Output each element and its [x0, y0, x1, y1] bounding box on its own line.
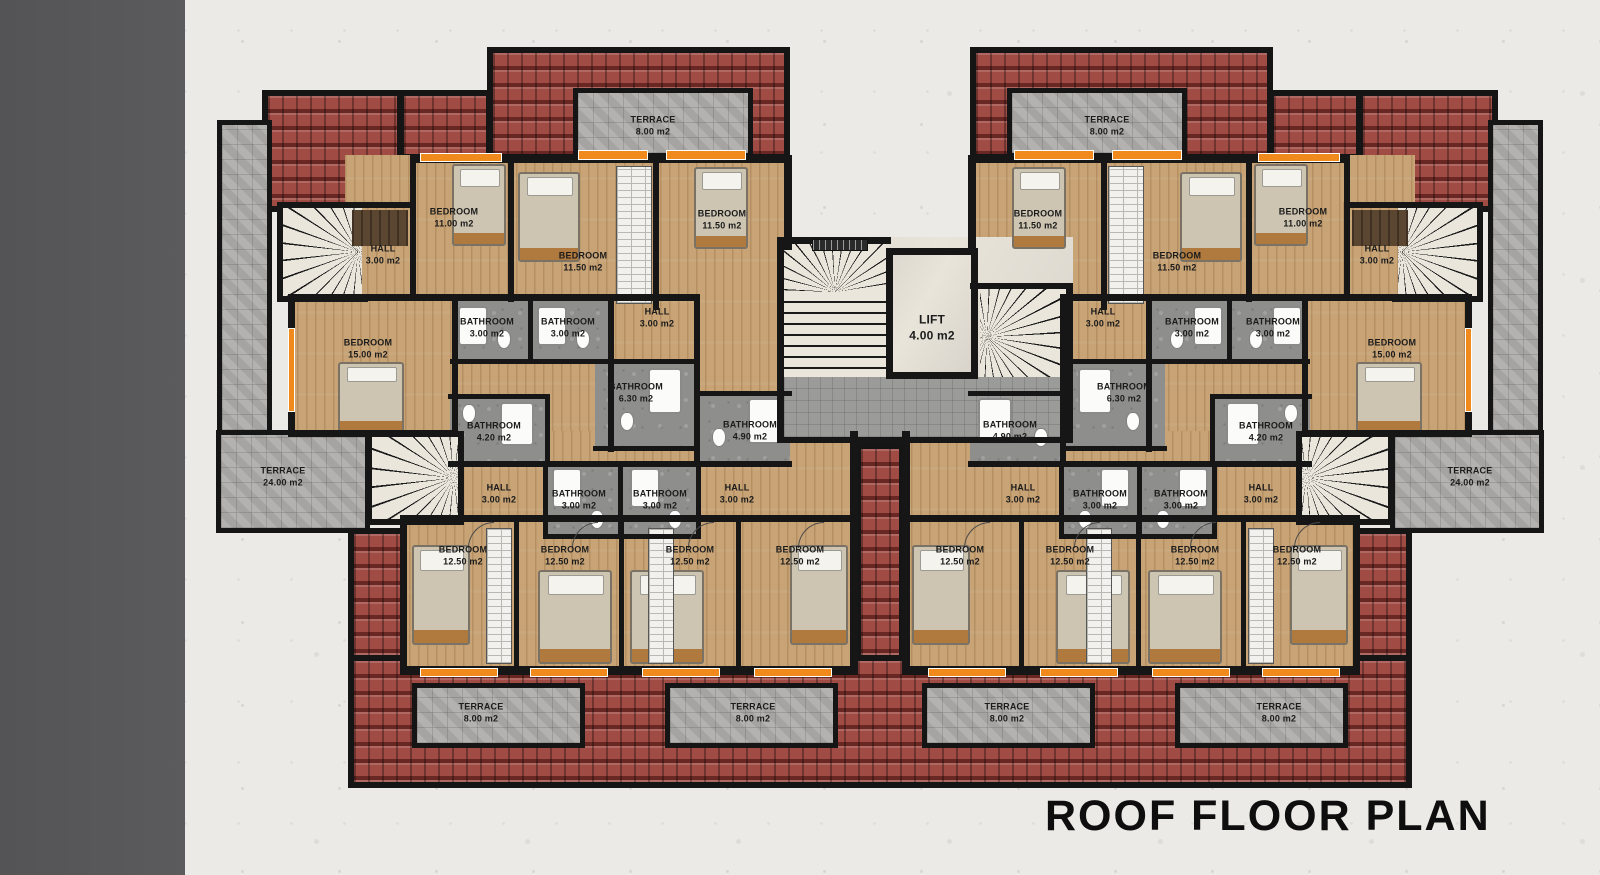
wall — [1477, 202, 1483, 302]
room-label-bathroom: BATHROOM4.90 m2 — [983, 419, 1037, 442]
window — [1040, 668, 1118, 677]
room-label-terrace: TERRACE8.00 m2 — [1257, 701, 1302, 724]
window — [1262, 668, 1340, 677]
wall — [458, 431, 464, 525]
wall — [508, 155, 514, 302]
room-label-bathroom: BATHROOM3.00 m2 — [1154, 488, 1208, 511]
room-label-bedroom: BEDROOM12.50 m2 — [439, 544, 487, 567]
wall — [1066, 283, 1073, 443]
room-label-bathroom: BATHROOM6.30 m2 — [1097, 381, 1151, 404]
stairs-lower-right — [1302, 437, 1388, 519]
window — [1465, 328, 1472, 412]
room-label-hall: HALL3.00 m2 — [1006, 482, 1040, 505]
wall — [850, 431, 858, 675]
stairs-upper-left — [282, 208, 362, 296]
bed — [1356, 362, 1422, 432]
room-label-hall: HALL3.00 m2 — [1086, 306, 1120, 329]
wall — [970, 283, 1073, 289]
wall — [968, 391, 1060, 396]
wardrobe — [486, 528, 512, 664]
wall — [1302, 294, 1308, 436]
room-label-lift: LIFT4.00 m2 — [909, 312, 954, 343]
window — [578, 150, 648, 160]
room-label-bedroom: BEDROOM12.50 m2 — [666, 544, 714, 567]
toilet — [1126, 412, 1140, 431]
window — [666, 150, 746, 160]
room-label-terrace: TERRACE8.00 m2 — [459, 701, 504, 724]
wall — [277, 202, 416, 208]
room-label-bathroom: BATHROOM3.00 m2 — [460, 316, 514, 339]
room-label-bedroom: BEDROOM11.50 m2 — [698, 208, 746, 231]
room-label-terrace: TERRACE8.00 m2 — [631, 114, 676, 137]
bed — [452, 164, 506, 246]
bed — [338, 362, 404, 432]
room-label-terrace: TERRACE8.00 m2 — [1085, 114, 1130, 137]
wall — [784, 155, 792, 250]
wall — [902, 431, 910, 675]
terrace-left-walkway — [217, 120, 272, 435]
toilet — [620, 412, 634, 431]
wall — [288, 294, 698, 301]
window — [1152, 668, 1230, 677]
room-label-hall: HALL3.00 m2 — [1360, 243, 1394, 266]
room-label-hall: HALL3.00 m2 — [720, 482, 754, 505]
bed — [1254, 164, 1308, 246]
wall — [410, 155, 416, 300]
roof-center-strip — [855, 443, 905, 673]
wall — [452, 294, 458, 436]
room-label-bedroom: BEDROOM12.50 m2 — [1171, 544, 1219, 567]
wall — [777, 237, 784, 443]
wall — [543, 461, 548, 539]
bed — [1148, 570, 1222, 664]
room-label-bedroom: BEDROOM12.50 m2 — [776, 544, 824, 567]
room-label-bathroom: BATHROOM3.00 m2 — [552, 488, 606, 511]
closet — [352, 210, 408, 246]
stairs-upper-right — [1398, 208, 1478, 296]
wall — [1059, 461, 1064, 539]
room-label-bedroom: BEDROOM12.50 m2 — [1046, 544, 1094, 567]
wall — [366, 431, 464, 437]
stairs-lower-left — [372, 437, 458, 519]
wall — [448, 394, 550, 399]
wall — [1246, 155, 1252, 302]
room-label-hall: HALL3.00 m2 — [482, 482, 516, 505]
roof-top-left-step — [398, 90, 492, 160]
window — [420, 668, 498, 677]
window — [1112, 150, 1182, 160]
wardrobe — [1108, 166, 1144, 304]
room-label-bedroom: BEDROOM11.50 m2 — [1014, 208, 1062, 231]
bed — [1180, 172, 1242, 262]
room-label-bathroom: BATHROOM4.20 m2 — [1239, 420, 1293, 443]
wall — [653, 158, 659, 310]
wall — [608, 294, 614, 452]
wall — [1241, 522, 1246, 669]
window — [1258, 153, 1340, 162]
room-label-terrace: TERRACE24.00 m2 — [1448, 465, 1493, 488]
room-label-bedroom: BEDROOM11.50 m2 — [1153, 250, 1201, 273]
room-label-bathroom: BATHROOM3.00 m2 — [541, 316, 595, 339]
bed — [538, 570, 612, 664]
room-label-bedroom: BEDROOM15.00 m2 — [1368, 337, 1416, 360]
room-label-terrace: TERRACE8.00 m2 — [731, 701, 776, 724]
terrace-right-walkway — [1488, 120, 1543, 435]
room-label-terrace: TERRACE24.00 m2 — [261, 465, 306, 488]
wall — [1136, 522, 1141, 669]
wall — [1062, 294, 1472, 301]
room-label-hall: HALL3.00 m2 — [1244, 482, 1278, 505]
room-label-bedroom: BEDROOM12.50 m2 — [1273, 544, 1321, 567]
stairs-core-left-fan — [784, 244, 886, 292]
side-strip — [0, 0, 185, 875]
room-label-bathroom: BATHROOM4.20 m2 — [467, 420, 521, 443]
wardrobe — [616, 166, 652, 304]
wall — [1344, 155, 1350, 300]
window — [754, 668, 832, 677]
room-label-bedroom: BEDROOM15.00 m2 — [344, 337, 392, 360]
window — [1014, 150, 1094, 160]
wall — [694, 294, 700, 467]
window-ac-bar — [812, 239, 868, 251]
closet — [1352, 210, 1408, 246]
wall — [1210, 394, 1215, 466]
room-label-terrace: TERRACE8.00 m2 — [985, 701, 1030, 724]
wall — [968, 155, 976, 250]
room-label-bathroom: BATHROOM3.00 m2 — [1073, 488, 1127, 511]
wall — [400, 515, 857, 522]
wall — [1227, 300, 1232, 361]
room-label-hall: HALL3.00 m2 — [366, 243, 400, 266]
wall — [1296, 431, 1302, 525]
room-label-hall: HALL3.00 m2 — [640, 306, 674, 329]
wall — [1388, 431, 1394, 525]
wall — [619, 522, 624, 669]
page-title: ROOF FLOOR PLAN — [1045, 792, 1491, 841]
roof-floor-plan: TERRACE8.00 m2 TERRACE8.00 m2 BEDROOM11.… — [0, 0, 1600, 875]
wall — [366, 431, 372, 525]
wall — [903, 515, 1360, 522]
window — [288, 328, 295, 412]
stairs-core-right-fan — [980, 288, 1066, 377]
window — [420, 153, 502, 162]
room-label-bathroom: BATHROOM4.90 m2 — [723, 419, 777, 442]
wall — [1101, 158, 1107, 310]
room-label-bathroom: BATHROOM3.00 m2 — [1165, 316, 1219, 339]
wall — [528, 300, 533, 361]
room-label-bedroom: BEDROOM11.50 m2 — [559, 250, 607, 273]
wall — [1296, 431, 1394, 437]
wall — [545, 394, 550, 466]
wall — [277, 202, 283, 302]
bed — [518, 172, 580, 262]
window — [530, 668, 608, 677]
room-label-bedroom: BEDROOM12.50 m2 — [541, 544, 589, 567]
wall — [1019, 522, 1024, 669]
wall — [450, 359, 700, 364]
stairs-core-left-run — [784, 292, 886, 377]
window — [928, 668, 1006, 677]
window — [642, 668, 720, 677]
wall — [1210, 394, 1312, 399]
wall — [400, 515, 407, 673]
wall — [736, 522, 741, 669]
wardrobe — [1248, 528, 1274, 664]
wall — [1344, 202, 1483, 208]
wall — [1060, 359, 1310, 364]
room-label-bathroom: BATHROOM6.30 m2 — [609, 381, 663, 404]
wall — [1062, 446, 1167, 451]
room-label-bedroom: BEDROOM11.00 m2 — [1279, 206, 1327, 229]
wall — [593, 446, 698, 451]
wall — [1353, 515, 1360, 673]
roof-top-right-step — [1268, 90, 1362, 160]
room-label-bedroom: BEDROOM11.00 m2 — [430, 206, 478, 229]
room-label-bathroom: BATHROOM3.00 m2 — [633, 488, 687, 511]
wall — [514, 522, 519, 669]
room-label-bathroom: BATHROOM3.00 m2 — [1246, 316, 1300, 339]
wall — [1146, 294, 1152, 452]
room-label-bedroom: BEDROOM12.50 m2 — [936, 544, 984, 567]
